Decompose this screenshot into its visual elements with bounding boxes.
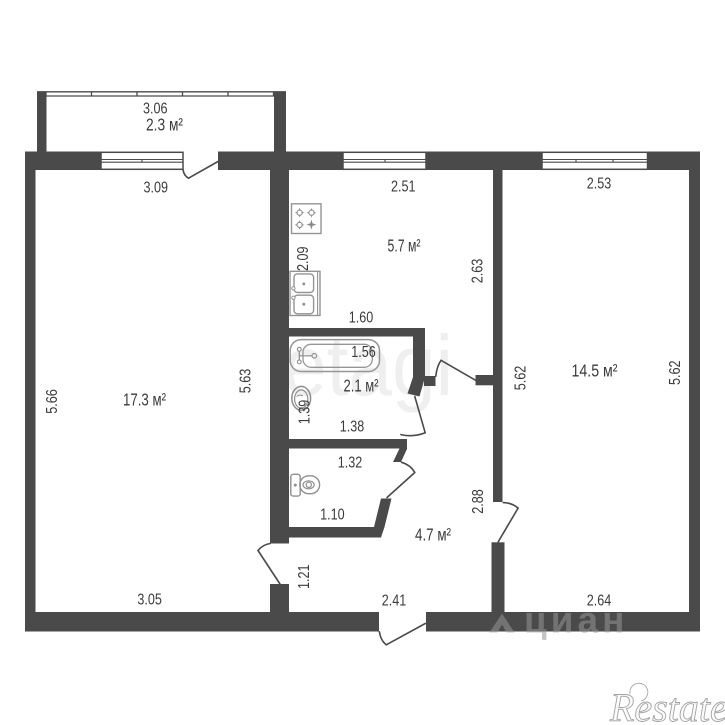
svg-text:1.39: 1.39 <box>296 400 313 425</box>
svg-text:1.56: 1.56 <box>351 344 376 361</box>
svg-text:14.5 м²: 14.5 м² <box>572 361 618 381</box>
svg-text:2.51: 2.51 <box>391 178 416 195</box>
svg-text:2.1 м²: 2.1 м² <box>344 376 379 396</box>
svg-text:5.63: 5.63 <box>238 369 255 394</box>
svg-text:циан: циан <box>524 600 628 641</box>
svg-text:5.62: 5.62 <box>513 366 530 391</box>
svg-text:5.7 м²: 5.7 м² <box>388 236 421 256</box>
svg-text:1.32: 1.32 <box>338 454 363 471</box>
svg-text:2.3 м²: 2.3 м² <box>146 115 183 135</box>
svg-text:3.09: 3.09 <box>143 179 168 196</box>
svg-text:1.60: 1.60 <box>349 309 374 326</box>
svg-text:2.53: 2.53 <box>587 175 612 192</box>
svg-text:1.10: 1.10 <box>320 506 345 523</box>
svg-text:Restate: Restate <box>609 685 725 725</box>
svg-text:2.41: 2.41 <box>382 592 407 609</box>
svg-text:1.21: 1.21 <box>296 564 313 589</box>
svg-text:17.3 м²: 17.3 м² <box>123 390 166 410</box>
svg-text:5.62: 5.62 <box>667 360 684 385</box>
svg-text:4.7 м²: 4.7 м² <box>415 525 451 545</box>
svg-text:1.38: 1.38 <box>340 418 365 435</box>
svg-text:2.63: 2.63 <box>470 259 487 284</box>
svg-text:3.05: 3.05 <box>137 591 162 608</box>
svg-text:5.66: 5.66 <box>44 389 61 414</box>
svg-text:2.88: 2.88 <box>470 489 487 514</box>
svg-text:2.09: 2.09 <box>295 246 312 271</box>
